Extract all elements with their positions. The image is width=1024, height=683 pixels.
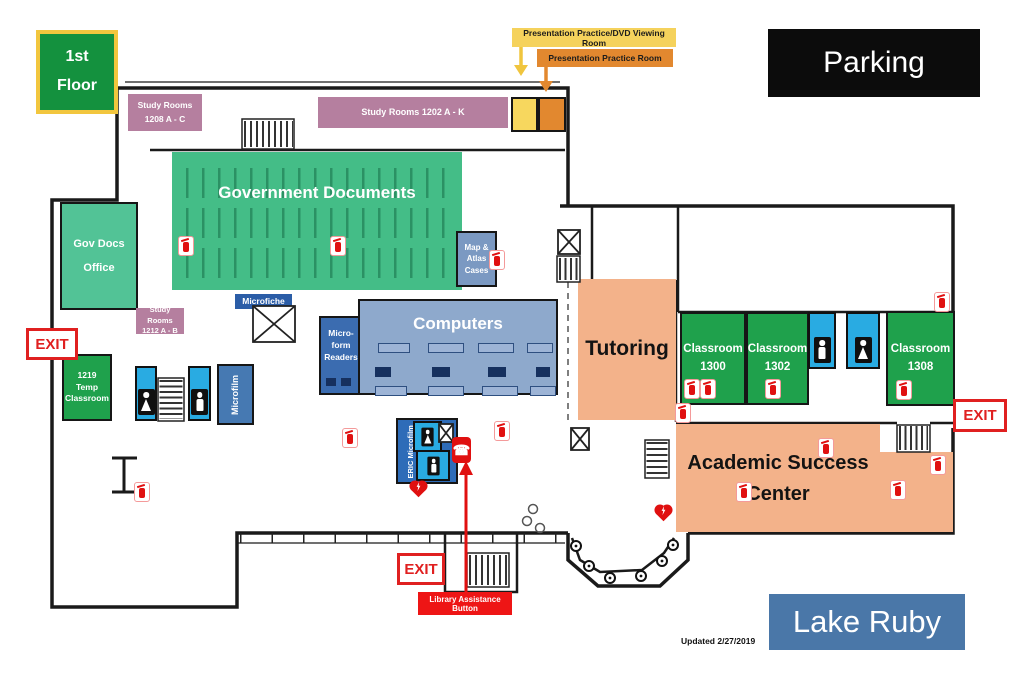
callout-library-assistance: Library Assistance Button	[418, 592, 512, 615]
fire-extinguisher-icon	[342, 428, 358, 448]
restroom-men	[808, 312, 836, 369]
room-microfiche-label: Microfiche	[235, 294, 292, 309]
fire-extinguisher-icon	[178, 236, 194, 256]
updated-date: Updated 2/27/2019	[681, 636, 755, 646]
women-restroom-icon	[421, 427, 433, 446]
parking-label: Parking	[768, 29, 980, 97]
room-academic-success-center: Academic Success Center	[676, 424, 880, 532]
fire-extinguisher-icon	[700, 379, 716, 399]
room-temp-classroom-1219: 1219 Temp Classroom	[62, 354, 112, 421]
fire-extinguisher-icon	[934, 292, 950, 312]
reader-station	[326, 378, 336, 386]
room-presentation-dvd	[511, 97, 538, 132]
computer-desk	[527, 343, 553, 353]
computer-desk	[375, 386, 407, 396]
fire-extinguisher-icon	[896, 380, 912, 400]
men-restroom-icon	[814, 337, 831, 363]
fire-extinguisher-icon	[890, 480, 906, 500]
porch-columns	[571, 540, 678, 583]
room-government-documents: Government Documents	[172, 152, 462, 290]
computer-station	[375, 367, 391, 377]
restroom-men	[416, 450, 450, 481]
computer-desk	[530, 386, 556, 396]
floor-plan-map: Study Rooms 1208 A - C Study Rooms 1202 …	[0, 0, 1024, 683]
exit-sign-left: EXIT	[26, 328, 78, 360]
computer-station	[488, 367, 506, 377]
fire-extinguisher-icon	[765, 379, 781, 399]
exit-sign-bottom: EXIT	[397, 553, 445, 585]
room-gov-docs-office: Gov Docs Office	[60, 202, 138, 310]
callout-presentation-dvd: Presentation Practice/DVD Viewing Room	[512, 28, 676, 47]
aed-heart-icon	[411, 482, 427, 498]
computer-station	[432, 367, 450, 377]
cafe-tables	[523, 505, 545, 533]
restroom-men	[188, 366, 211, 421]
fire-extinguisher-icon	[330, 236, 346, 256]
room-microform-readers: Micro- form Readers	[319, 316, 363, 395]
shelving-pattern	[186, 248, 448, 278]
women-restroom-icon	[855, 337, 872, 363]
fire-extinguisher-icon	[684, 379, 700, 399]
restroom-women	[846, 312, 880, 369]
arrow-library-assistance-icon	[459, 461, 473, 592]
reader-station	[341, 378, 351, 386]
fire-extinguisher-icon	[134, 482, 150, 502]
restroom-women	[135, 366, 157, 421]
lake-ruby-label: Lake Ruby	[769, 594, 965, 650]
fire-extinguisher-icon	[736, 482, 752, 502]
computer-desk	[482, 386, 518, 396]
computer-desk	[428, 386, 464, 396]
callout-presentation-practice: Presentation Practice Room	[537, 49, 673, 67]
computer-desk	[378, 343, 410, 353]
fire-extinguisher-icon	[675, 403, 691, 423]
room-tutoring: Tutoring	[578, 279, 676, 420]
exit-sign-right: EXIT	[953, 399, 1007, 432]
shelving-pattern	[186, 208, 448, 238]
fire-extinguisher-icon	[930, 455, 946, 475]
assistance-phone-icon: ☎	[452, 437, 471, 463]
fire-extinguisher-icon	[818, 438, 834, 458]
computer-desk	[478, 343, 514, 353]
fire-extinguisher-icon	[489, 250, 505, 270]
room-microfilm: Microfilm	[217, 364, 254, 425]
room-study-1208: Study Rooms 1208 A - C	[128, 94, 202, 131]
computer-desk	[428, 343, 464, 353]
men-restroom-icon	[427, 456, 439, 475]
women-restroom-icon	[138, 389, 155, 415]
entry-porch	[571, 538, 678, 583]
fire-extinguisher-icon	[494, 421, 510, 441]
computer-station	[536, 367, 550, 377]
arrow-presentation-dvd-icon	[514, 47, 528, 76]
arrow-presentation-practice-icon	[539, 67, 553, 92]
floor-badge: 1st Floor	[36, 30, 118, 114]
men-restroom-icon	[191, 389, 208, 415]
room-study-1202: Study Rooms 1202 A - K	[318, 97, 508, 128]
room-study-1212: Study Rooms 1212 A - B	[136, 308, 184, 334]
room-presentation-practice	[538, 97, 566, 132]
aed-heart-icon	[656, 506, 672, 522]
restroom-women	[413, 421, 442, 452]
